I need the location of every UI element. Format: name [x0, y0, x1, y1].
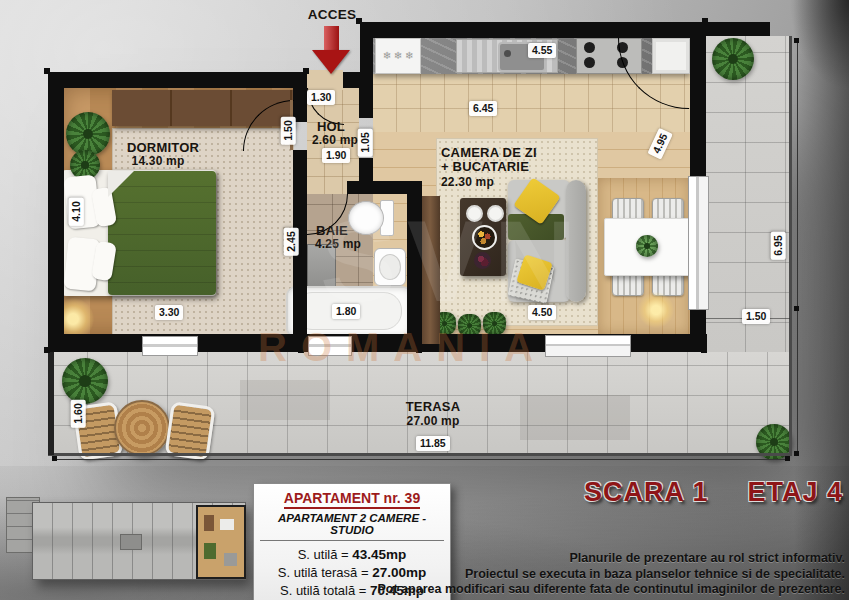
mini-plan	[2, 486, 250, 596]
disclaimer-line-2: Proiectul se executa in baza planselor t…	[285, 567, 845, 583]
terasa-floor-right	[706, 36, 792, 352]
dim-end	[52, 456, 57, 461]
scara-label: SCARA 1	[584, 477, 709, 508]
wall-right-lower	[690, 308, 706, 352]
dormitor-area: 14.30 mp	[108, 155, 208, 168]
baie-living-wood-panel	[422, 196, 440, 344]
flower-vase	[474, 252, 491, 269]
disclaimer: Planurile de prezentare au rol strict in…	[285, 551, 845, 598]
terasa-tile-accent	[240, 380, 330, 420]
wall-baie-living	[407, 194, 422, 352]
apartment-subtitle: APARTAMENT 2 CAMERE - STUDIO	[260, 509, 444, 541]
apartment-title: APARTAMENT nr. 39	[284, 490, 420, 509]
dim-terasa-left-width: 1.60	[71, 399, 86, 427]
terasa-area: 27.00 mp	[388, 415, 478, 428]
floorplan-page: { "access": { "label": "ACCES" }, "water…	[0, 0, 849, 600]
plant-terasa-topright	[712, 38, 754, 80]
acces-label: ACCES	[300, 7, 364, 22]
marker-dot	[701, 347, 707, 353]
terasa-edge-left	[48, 352, 54, 455]
mini-highlight-rug	[220, 519, 234, 530]
dim-end	[794, 306, 799, 311]
sofa-back	[566, 180, 586, 302]
dim-terasa-right-width: 1.50	[742, 309, 770, 324]
marker-dot	[303, 68, 309, 74]
baie-sink-basin	[379, 254, 401, 280]
living-bush	[483, 312, 506, 335]
stove-burner	[584, 57, 595, 68]
dim-baie-left: 2.45	[284, 227, 299, 255]
topright-vignette	[789, 0, 849, 90]
terasa-table	[114, 400, 170, 456]
living-name2: + BUCATARIE	[441, 160, 551, 175]
plant-terasa-left	[62, 358, 108, 404]
dim-kitchen-counter: 4.55	[528, 43, 556, 58]
disclaimer-line-1: Planurile de prezentare au rol strict in…	[285, 551, 845, 567]
window-dormitor	[142, 336, 198, 356]
dim-hol-width: 1.90	[322, 148, 350, 163]
lamp-living	[638, 292, 674, 328]
mini-highlight-wardrobe	[204, 515, 214, 531]
dim-terasa-right-height: 6.95	[771, 231, 786, 259]
dim-line-bottom	[55, 459, 788, 460]
window-living-right	[688, 176, 709, 310]
marker-dot	[44, 347, 50, 353]
terasa-edge-right	[789, 36, 792, 455]
mini-plan-notch	[120, 534, 142, 550]
living-area: 22.30 mp	[441, 176, 551, 189]
wall-top-kitchen	[360, 22, 706, 38]
dim-line-right	[797, 40, 798, 455]
marker-dot	[416, 347, 422, 353]
terasa-edge-bottom	[48, 453, 792, 456]
etaj-label: ETAJ 4	[747, 477, 843, 508]
bed-duvet-fold	[108, 171, 134, 197]
dim-end	[794, 451, 799, 456]
dining-centerpiece	[636, 235, 658, 257]
mini-plan-highlight	[196, 505, 246, 579]
wall-right-upper	[690, 22, 706, 176]
mini-highlight-sofa	[224, 553, 237, 566]
wall-top-bedroom	[48, 72, 307, 88]
marker-dot	[44, 68, 50, 74]
disclaimer-line-3: Pot aparea modificari sau diferente fata…	[285, 582, 845, 598]
wall-left	[48, 72, 64, 352]
dim-terasa-length: 11.85	[416, 436, 450, 451]
marker-dot	[702, 18, 708, 24]
terasa-chair	[164, 401, 215, 461]
wall-terasa-top-stub	[706, 22, 770, 36]
coffee-table-plate	[466, 205, 483, 222]
dim-end	[794, 38, 799, 43]
fruit-bowl	[472, 225, 497, 250]
dim-dormitor-height: 4.10	[69, 197, 84, 225]
acces-arrow-head	[312, 50, 350, 74]
dim-acces-width: 1.30	[307, 90, 335, 105]
acces-arrow	[324, 26, 339, 52]
right-vignette	[794, 0, 849, 600]
door-terasa	[545, 335, 631, 357]
terasa-name: TERASA	[388, 400, 478, 415]
wall-entry-connector	[360, 38, 373, 88]
dim-end	[785, 456, 790, 461]
mini-highlight-bed	[204, 543, 216, 559]
terasa-tile-accent	[520, 395, 630, 440]
stove-burner	[584, 42, 595, 53]
dim-bathtub: 1.80	[332, 304, 360, 319]
dim-living-bottom: 4.50	[528, 305, 556, 320]
window-baie	[308, 336, 352, 356]
wall-hol-baie	[347, 181, 422, 194]
coffee-table-plate	[487, 205, 504, 222]
baie-area: 4.25 mp	[303, 238, 373, 251]
wall-hol-living-upper	[359, 88, 373, 118]
kitchen-faucet	[504, 50, 511, 57]
dim-dormitor-width: 3.30	[155, 305, 183, 320]
marker-dot	[298, 347, 304, 353]
fridge: ❄ ❄ ❄	[375, 38, 421, 74]
dim-hol-right: 1.05	[358, 128, 373, 156]
dim-living-top: 6.45	[469, 101, 497, 116]
dim-hol-left: 1.50	[281, 116, 296, 144]
